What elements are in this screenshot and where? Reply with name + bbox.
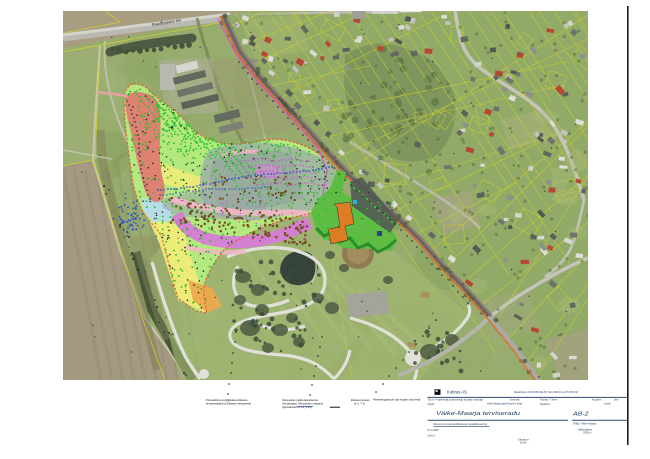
svg-text:Olemasolev parkla laiendamise: Olemasolev parkla laiendamise bbox=[282, 398, 319, 402]
svg-text:Joonis:: Joonis: bbox=[604, 404, 612, 406]
svg-text:Planeeringuala piir (piir kulg: Planeeringuala piir (piir kulgeb mda tee… bbox=[373, 398, 420, 402]
svg-text:Registrikood 10171636 Riia 35: Registrikood 10171636 Riia 35, Tartu 504… bbox=[514, 391, 579, 394]
svg-text:Väike-Maarja terviseradu: Väike-Maarja terviseradu bbox=[436, 411, 521, 417]
svg-text:Väike-Maarja vallas Ebavere kü: Väike-Maarja vallas Ebavere külas bbox=[487, 403, 523, 406]
svg-text:(A-1, T-1): (A-1, T-1) bbox=[354, 401, 365, 405]
svg-text:Staadium:: Staadium: bbox=[540, 403, 551, 406]
svg-text:M 1:2000: M 1:2000 bbox=[428, 428, 439, 432]
svg-text:Kontrollis:: Kontrollis: bbox=[510, 399, 520, 402]
svg-text:Ebavere keskus: Ebavere keskus bbox=[351, 398, 370, 402]
svg-text:Töö nr: Projekteerija ja plane: Töö nr: Projekteerija ja planeeringu koo… bbox=[428, 399, 484, 402]
svg-text:2005 a.: 2005 a. bbox=[583, 431, 592, 435]
svg-text:Leht: 1: Leht: 1 bbox=[428, 434, 436, 438]
svg-text:Kobras AS: Kobras AS bbox=[447, 390, 467, 395]
svg-text:Ebavere tervisespordikeskuse d: Ebavere tervisespordikeskuse detailplane… bbox=[434, 422, 488, 426]
svg-text:AB-2: AB-2 bbox=[572, 412, 590, 418]
svg-text:Kuupäev:: Kuupäev: bbox=[592, 400, 602, 402]
svg-text:Objekt:: Objekt: bbox=[428, 403, 436, 406]
svg-text:10/14: 10/14 bbox=[520, 441, 527, 445]
svg-text:Tellija: Väike-Maarja: Tellija: Väike-Maarja bbox=[573, 422, 597, 426]
svg-text:terviseradadele ja Ebavere kes: terviseradadele ja Ebavere keskusesse bbox=[206, 401, 252, 405]
svg-text:Perspektiivne kergliiklustee E: Perspektiivne kergliiklustee Ebavere bbox=[206, 398, 248, 402]
svg-text:võimalusega. Olemasolev mahaso: võimalusega. Olemasolev mahasoit bbox=[282, 401, 323, 405]
svg-text:Koostas: T.Treier: Koostas: T.Treier bbox=[540, 399, 557, 402]
